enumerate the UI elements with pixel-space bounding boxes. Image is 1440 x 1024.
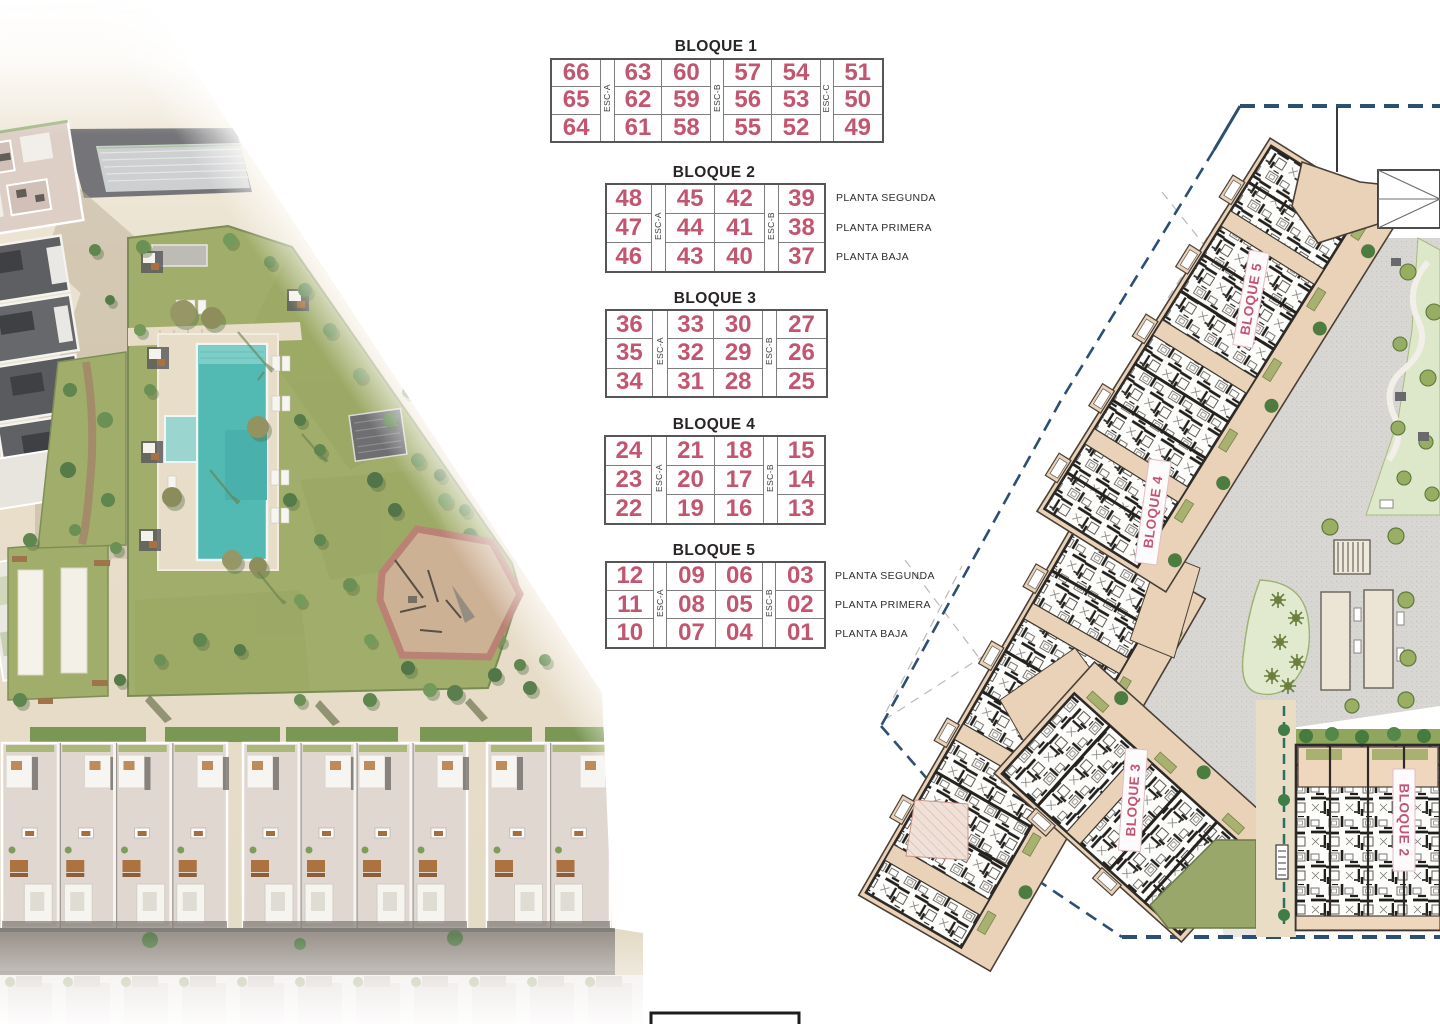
svg-text:BLOQUE 2: BLOQUE 2 xyxy=(1397,783,1412,856)
